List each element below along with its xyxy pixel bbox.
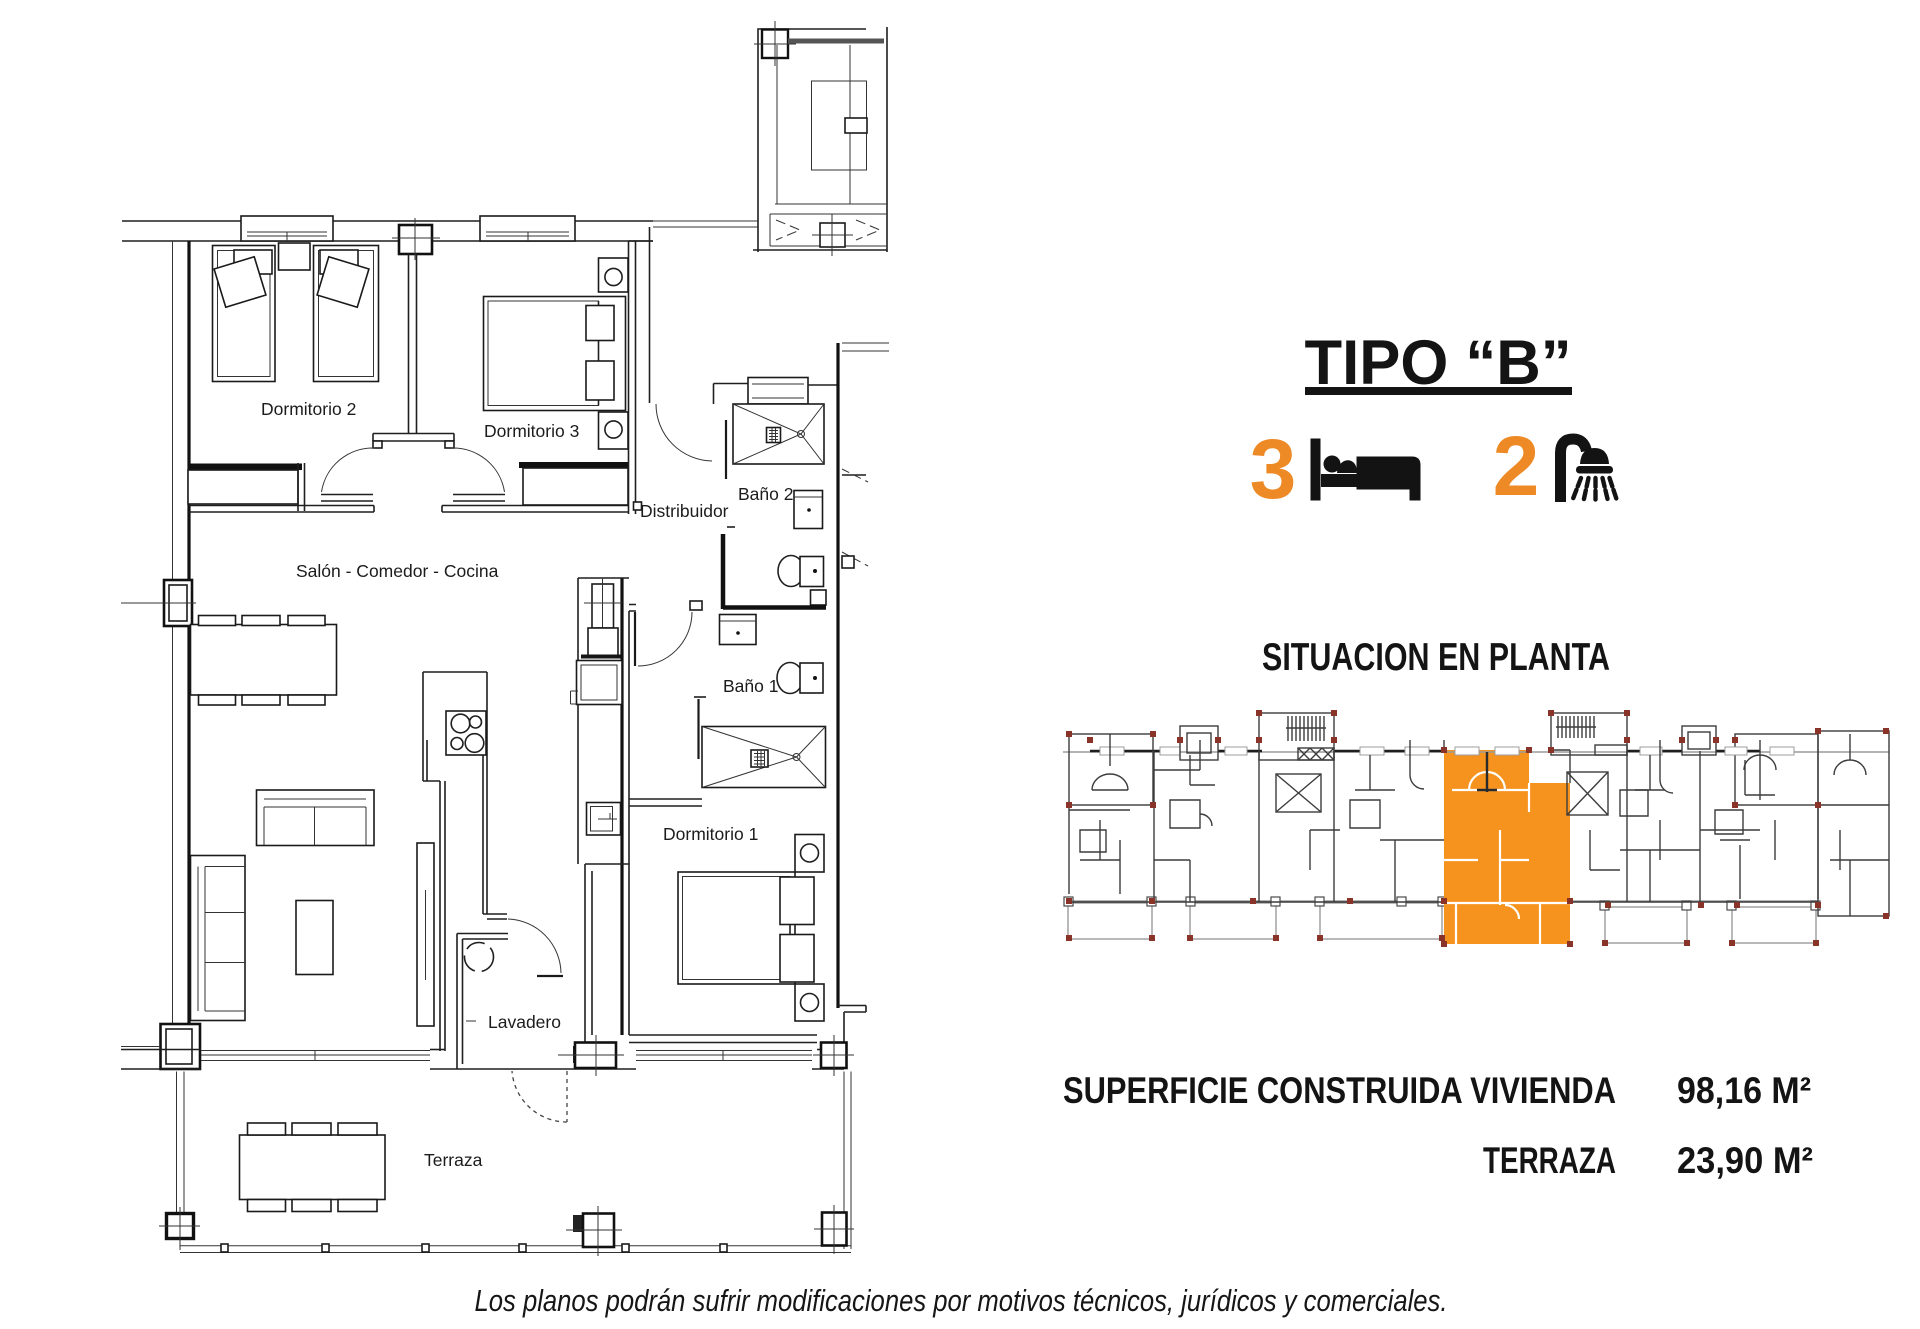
svg-text:SUPERFICIE CONSTRUIDA VIVIENDA: SUPERFICIE CONSTRUIDA VIVIENDA — [1063, 1070, 1616, 1111]
svg-text:Salón - Comedor - Cocina: Salón - Comedor - Cocina — [296, 561, 499, 581]
svg-text:98,16 M²: 98,16 M² — [1677, 1070, 1811, 1111]
svg-text:Lavadero: Lavadero — [488, 1012, 561, 1032]
svg-text:SITUACION EN PLANTA: SITUACION EN PLANTA — [1262, 636, 1610, 679]
svg-text:Terraza: Terraza — [424, 1150, 483, 1170]
svg-text:Distribuidor: Distribuidor — [640, 501, 729, 521]
svg-text:Dormitorio 2: Dormitorio 2 — [261, 399, 356, 419]
svg-text:Baño 2: Baño 2 — [738, 484, 793, 504]
svg-text:2: 2 — [1493, 419, 1540, 513]
svg-text:Dormitorio 3: Dormitorio 3 — [484, 421, 579, 441]
svg-text:23,90 M²: 23,90 M² — [1677, 1140, 1813, 1181]
svg-text:3: 3 — [1250, 422, 1297, 516]
svg-text:TERRAZA: TERRAZA — [1483, 1140, 1616, 1181]
svg-text:Los planos podrán sufrir modif: Los planos podrán sufrir modificaciones … — [475, 1283, 1448, 1318]
svg-text:Dormitorio 1: Dormitorio 1 — [663, 824, 758, 844]
svg-text:Baño 1: Baño 1 — [723, 676, 778, 696]
